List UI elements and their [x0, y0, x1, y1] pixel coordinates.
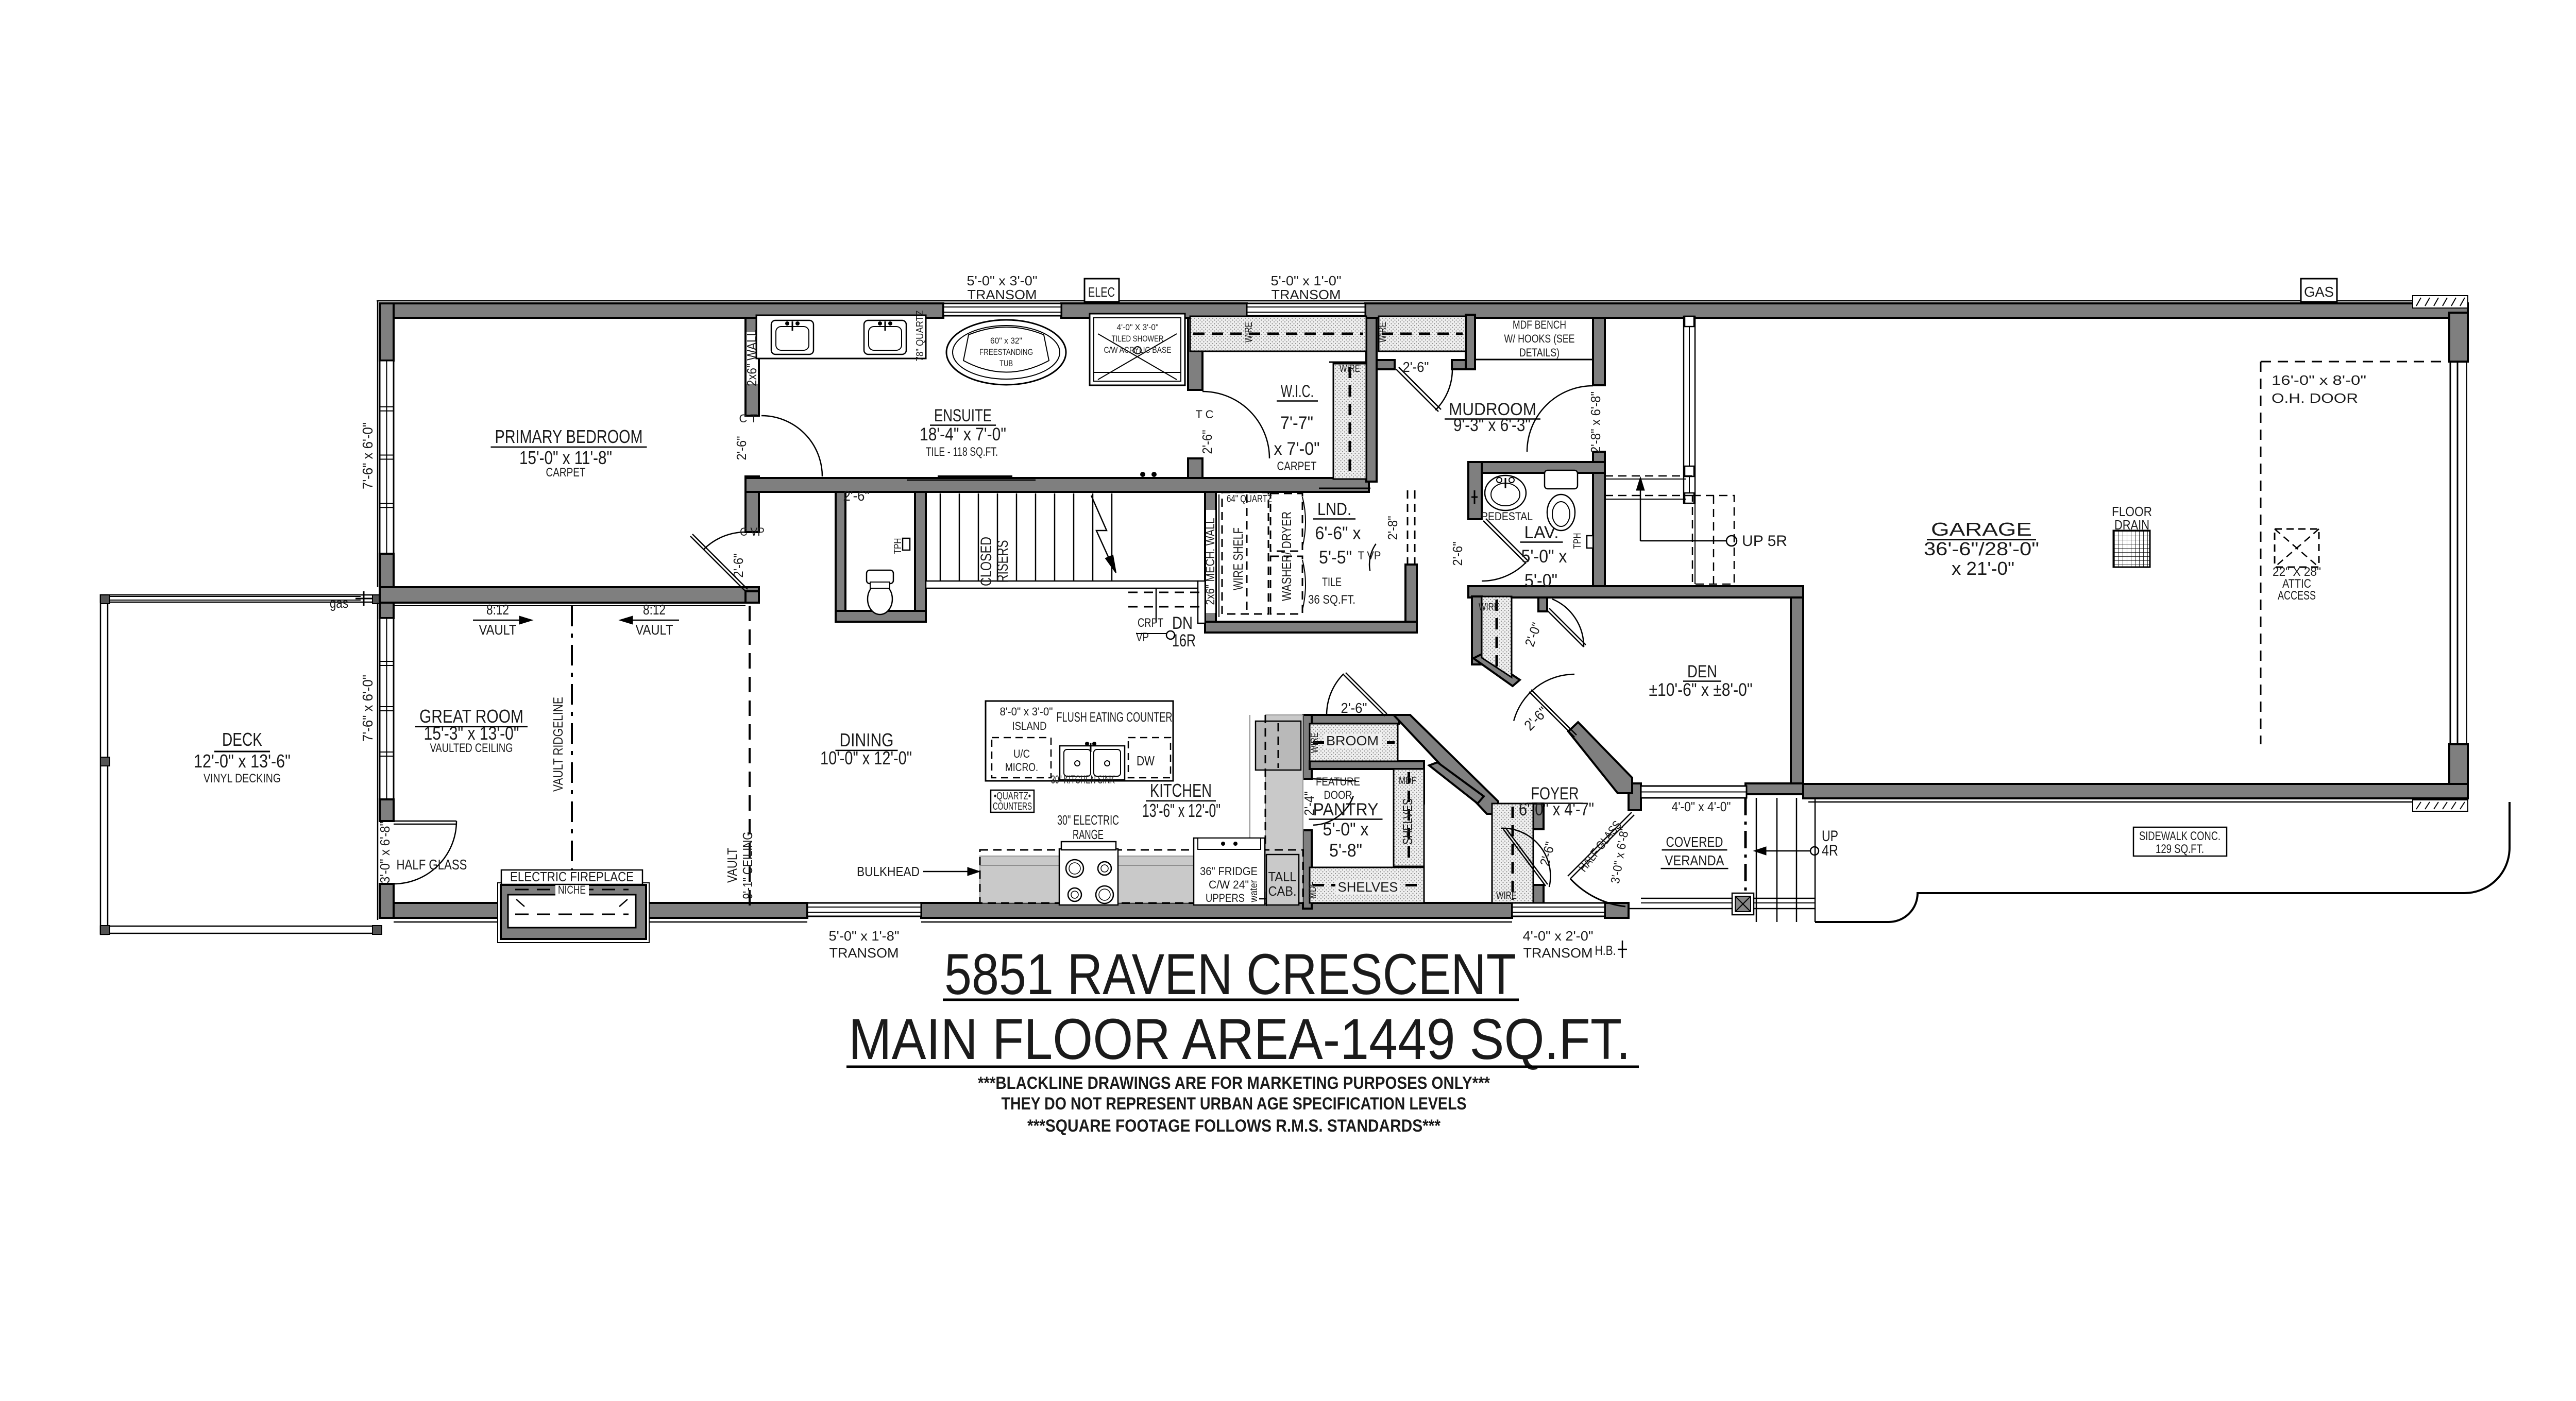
- svg-text:C VP: C VP: [740, 525, 765, 538]
- svg-text:36" FRIDGE: 36" FRIDGE: [1200, 865, 1258, 878]
- svg-text:WIRE: WIRE: [1340, 363, 1360, 374]
- svg-text:TILE - 118 SQ.FT.: TILE - 118 SQ.FT.: [926, 445, 998, 459]
- svg-text:2'-6": 2'-6": [1403, 359, 1429, 375]
- svg-text:x 7'-0": x 7'-0": [1274, 439, 1320, 459]
- svg-text:VERANDA: VERANDA: [1665, 852, 1724, 868]
- svg-text:COUNTERS: COUNTERS: [993, 801, 1032, 812]
- svg-text:***BLACKLINE DRAWINGS ARE FOR: ***BLACKLINE DRAWINGS ARE FOR MARKETING …: [978, 1073, 1490, 1093]
- svg-text:SHELVES: SHELVES: [1338, 879, 1398, 895]
- svg-text:6'-0" x 4'-7": 6'-0" x 4'-7": [1519, 799, 1594, 819]
- svg-text:5'-0": 5'-0": [1524, 571, 1557, 591]
- svg-text:9'-1" CEILING: 9'-1" CEILING: [740, 832, 755, 899]
- svg-text:36'-6"/28'-0": 36'-6"/28'-0": [1924, 538, 2039, 559]
- svg-text:7'-6" x 6'-0": 7'-6" x 6'-0": [360, 422, 376, 489]
- svg-text:TPH: TPH: [892, 538, 904, 554]
- svg-text:64" QUARTZ: 64" QUARTZ: [1227, 493, 1272, 505]
- svg-text:CRPT: CRPT: [1138, 616, 1163, 630]
- svg-text:CLOSED: CLOSED: [978, 537, 995, 586]
- svg-text:GARAGE: GARAGE: [1931, 519, 2032, 540]
- svg-text:VP: VP: [1136, 630, 1149, 644]
- svg-text:15'-3" x 13'-0": 15'-3" x 13'-0": [424, 723, 519, 744]
- svg-text:SIDEWALK CONC.: SIDEWALK CONC.: [2139, 829, 2221, 843]
- svg-text:2'-6": 2'-6": [734, 436, 749, 460]
- svg-text:2'-6": 2'-6": [843, 488, 870, 504]
- svg-text:W.I.C.: W.I.C.: [1281, 382, 1314, 401]
- svg-text:5'-0" x: 5'-0" x: [1521, 546, 1567, 567]
- svg-text:129 SQ.FT.: 129 SQ.FT.: [2156, 842, 2204, 856]
- svg-text:WIRE: WIRE: [1377, 322, 1388, 343]
- svg-text:gas: gas: [330, 595, 348, 611]
- svg-text:U/C: U/C: [1013, 747, 1030, 760]
- svg-text:4'-0" X 3'-0": 4'-0" X 3'-0": [1117, 322, 1159, 332]
- svg-text:4'-0" x 2'-0": 4'-0" x 2'-0": [1523, 928, 1594, 944]
- svg-text:T C: T C: [1196, 408, 1214, 421]
- svg-text:2'-8" x 6'-8": 2'-8" x 6'-8": [1588, 391, 1603, 453]
- svg-text:DW: DW: [1137, 753, 1155, 768]
- svg-text:THEY DO NOT REPRESENT URBAN AG: THEY DO NOT REPRESENT URBAN AGE SPECIFIC…: [1002, 1094, 1467, 1114]
- svg-text:15'-0" x 11'-8": 15'-0" x 11'-8": [519, 447, 612, 468]
- svg-text:16'-0" x 8'-0": 16'-0" x 8'-0": [2272, 372, 2366, 388]
- svg-text:TUB: TUB: [999, 358, 1013, 368]
- svg-text:8'-0" x 3'-0": 8'-0" x 3'-0": [1000, 705, 1053, 718]
- svg-text:VAULT: VAULT: [724, 848, 740, 883]
- svg-text:CARPET: CARPET: [1277, 459, 1317, 473]
- svg-text:FLUSH EATING COUNTER: FLUSH EATING COUNTER: [1057, 709, 1173, 725]
- svg-text:12'-0" x 13'-6": 12'-0" x 13'-6": [194, 750, 291, 772]
- svg-text:MDF: MDF: [1307, 881, 1318, 899]
- svg-text:VAULT: VAULT: [479, 622, 517, 638]
- svg-text:8:12: 8:12: [486, 602, 509, 618]
- svg-text:36 SQ.FT.: 36 SQ.FT.: [1308, 593, 1355, 607]
- svg-text:18'-4" x 7'-0": 18'-4" x 7'-0": [920, 424, 1006, 445]
- svg-text:WIRE: WIRE: [1479, 602, 1499, 613]
- svg-text:TRANSOM: TRANSOM: [1523, 945, 1593, 961]
- svg-text:30" KITCHEN SINK: 30" KITCHEN SINK: [1051, 773, 1115, 786]
- svg-text:2'-8": 2'-8": [1385, 516, 1400, 540]
- svg-text:PANTRY: PANTRY: [1313, 800, 1379, 819]
- svg-text:13'-6" x 12'-0": 13'-6" x 12'-0": [1142, 800, 1221, 821]
- svg-text:water: water: [1248, 880, 1260, 902]
- svg-text:2'-4": 2'-4": [1301, 792, 1317, 816]
- svg-text:GAS: GAS: [2304, 284, 2334, 300]
- svg-text:2'-6": 2'-6": [731, 554, 746, 578]
- svg-text:TRANSOM: TRANSOM: [829, 945, 899, 961]
- svg-text:PRIMARY BEDROOM: PRIMARY BEDROOM: [495, 426, 643, 447]
- svg-text:5'-5": 5'-5": [1319, 548, 1352, 568]
- svg-text:BROOM: BROOM: [1326, 733, 1379, 748]
- svg-text:5'-0" x 1'-0": 5'-0" x 1'-0": [1271, 273, 1342, 288]
- svg-text:C/W 24": C/W 24": [1209, 878, 1249, 891]
- svg-text:CAB.: CAB.: [1268, 883, 1297, 899]
- svg-text:O.H. DOOR: O.H. DOOR: [2272, 390, 2358, 406]
- svg-text:5'-0" x: 5'-0" x: [1323, 819, 1369, 840]
- svg-text:RISERS: RISERS: [994, 540, 1011, 583]
- svg-text:CARPET: CARPET: [546, 466, 586, 480]
- svg-text:ELECTRIC FIREPLACE: ELECTRIC FIREPLACE: [510, 869, 634, 884]
- svg-text:6'-6" x: 6'-6" x: [1315, 523, 1361, 543]
- svg-text:MAIN FLOOR AREA-1449 SQ.FT.: MAIN FLOOR AREA-1449 SQ.FT.: [849, 1007, 1631, 1071]
- svg-text:4'-0" x 4'-0": 4'-0" x 4'-0": [1672, 799, 1731, 814]
- svg-text:UPPERS: UPPERS: [1206, 892, 1245, 904]
- svg-text:UP 5R: UP 5R: [1742, 533, 1787, 550]
- svg-text:WIRE: WIRE: [1243, 322, 1255, 343]
- svg-text:ENSUITE: ENSUITE: [934, 406, 992, 425]
- svg-text:9'-3" x 6'-3": 9'-3" x 6'-3": [1453, 415, 1531, 435]
- svg-text:•QUARTZ•: •QUARTZ•: [994, 791, 1031, 802]
- svg-text:7'-7": 7'-7": [1280, 413, 1313, 433]
- svg-text:C T: C T: [739, 412, 757, 425]
- svg-text:LND.: LND.: [1317, 500, 1351, 519]
- svg-text:DETAILS): DETAILS): [1519, 346, 1560, 359]
- svg-text:DEN: DEN: [1687, 662, 1717, 681]
- svg-text:2'-6": 2'-6": [1450, 542, 1465, 566]
- svg-text:3'-0" x 6'-8": 3'-0" x 6'-8": [377, 822, 393, 883]
- svg-text:W/ HOOKS (SEE: W/ HOOKS (SEE: [1504, 332, 1575, 345]
- svg-text:RANGE: RANGE: [1073, 827, 1104, 842]
- svg-text:ACCESS: ACCESS: [2278, 589, 2316, 603]
- svg-text:VAULT: VAULT: [636, 622, 673, 638]
- svg-text:COVERED: COVERED: [1666, 834, 1723, 850]
- svg-text:DECK: DECK: [222, 729, 262, 750]
- svg-text:MICRO.: MICRO.: [1005, 761, 1038, 774]
- svg-text:2'-6": 2'-6": [1341, 700, 1367, 716]
- svg-text:16R: 16R: [1172, 631, 1196, 651]
- svg-text:C/W ACRYLIC BASE: C/W ACRYLIC BASE: [1104, 345, 1172, 355]
- svg-text:7'-6" x 6'-0": 7'-6" x 6'-0": [360, 675, 376, 742]
- svg-text:TRANSOM: TRANSOM: [1272, 287, 1341, 302]
- svg-text:TALL: TALL: [1268, 869, 1297, 884]
- svg-text:78" QUARTZ: 78" QUARTZ: [914, 311, 926, 362]
- svg-text:WIRE SHELF: WIRE SHELF: [1230, 527, 1246, 590]
- svg-text:WIRE: WIRE: [1496, 890, 1517, 901]
- svg-text:FEATURE: FEATURE: [1316, 775, 1360, 788]
- svg-text:8:12: 8:12: [643, 602, 666, 618]
- svg-text:H.B.: H.B.: [1595, 943, 1616, 958]
- svg-text:BULKHEAD: BULKHEAD: [857, 864, 920, 879]
- svg-text:5851 RAVEN CRESCENT: 5851 RAVEN CRESCENT: [944, 942, 1516, 1006]
- svg-text:PEDESTAL: PEDESTAL: [1481, 510, 1533, 523]
- svg-text:5'-0" x 3'-0": 5'-0" x 3'-0": [967, 273, 1038, 288]
- svg-text:NICHE: NICHE: [558, 883, 586, 896]
- svg-text:MDF BENCH: MDF BENCH: [1513, 318, 1566, 331]
- svg-text:TRANSOM: TRANSOM: [968, 287, 1037, 302]
- svg-text:ELEC: ELEC: [1088, 284, 1115, 300]
- svg-text:60" x 32": 60" x 32": [990, 336, 1022, 346]
- svg-text:WIRE: WIRE: [1309, 732, 1320, 753]
- svg-text:MDF: MDF: [1399, 775, 1416, 787]
- svg-text:ISLAND: ISLAND: [1012, 720, 1047, 732]
- svg-text:VAULT RIDGELINE: VAULT RIDGELINE: [550, 697, 566, 792]
- svg-text:HALF GLASS: HALF GLASS: [397, 857, 467, 873]
- svg-text:2'-6": 2'-6": [1199, 430, 1215, 454]
- svg-text:±10'-6" x ±8'-0": ±10'-6" x ±8'-0": [1649, 680, 1753, 700]
- svg-text:30" ELECTRIC: 30" ELECTRIC: [1057, 812, 1119, 828]
- svg-text:FREESTANDING: FREESTANDING: [979, 347, 1033, 357]
- svg-text:***SQUARE FOOTAGE FOLLOWS R.M.: ***SQUARE FOOTAGE FOLLOWS R.M.S. STANDAR…: [1027, 1116, 1441, 1136]
- svg-text:TILE: TILE: [1322, 575, 1342, 589]
- svg-text:TILED SHOWER: TILED SHOWER: [1112, 334, 1164, 344]
- svg-text:SHELVES: SHELVES: [1400, 798, 1415, 845]
- svg-text:VINYL DECKING: VINYL DECKING: [204, 772, 281, 785]
- svg-text:4R: 4R: [1822, 842, 1838, 859]
- svg-text:x 21'-0": x 21'-0": [1952, 558, 2014, 579]
- svg-text:VAULTED CEILING: VAULTED CEILING: [430, 741, 513, 755]
- svg-text:TPH: TPH: [1572, 533, 1583, 549]
- svg-text:5'-8": 5'-8": [1329, 841, 1362, 861]
- svg-text:5'-0" x 1'-8": 5'-0" x 1'-8": [829, 928, 900, 944]
- svg-text:10'-0" x 12'-0": 10'-0" x 12'-0": [820, 747, 912, 768]
- svg-text:DN: DN: [1172, 613, 1193, 633]
- svg-text:WASHER/ DRYER: WASHER/ DRYER: [1279, 511, 1294, 601]
- svg-text:KITCHEN: KITCHEN: [1150, 780, 1212, 801]
